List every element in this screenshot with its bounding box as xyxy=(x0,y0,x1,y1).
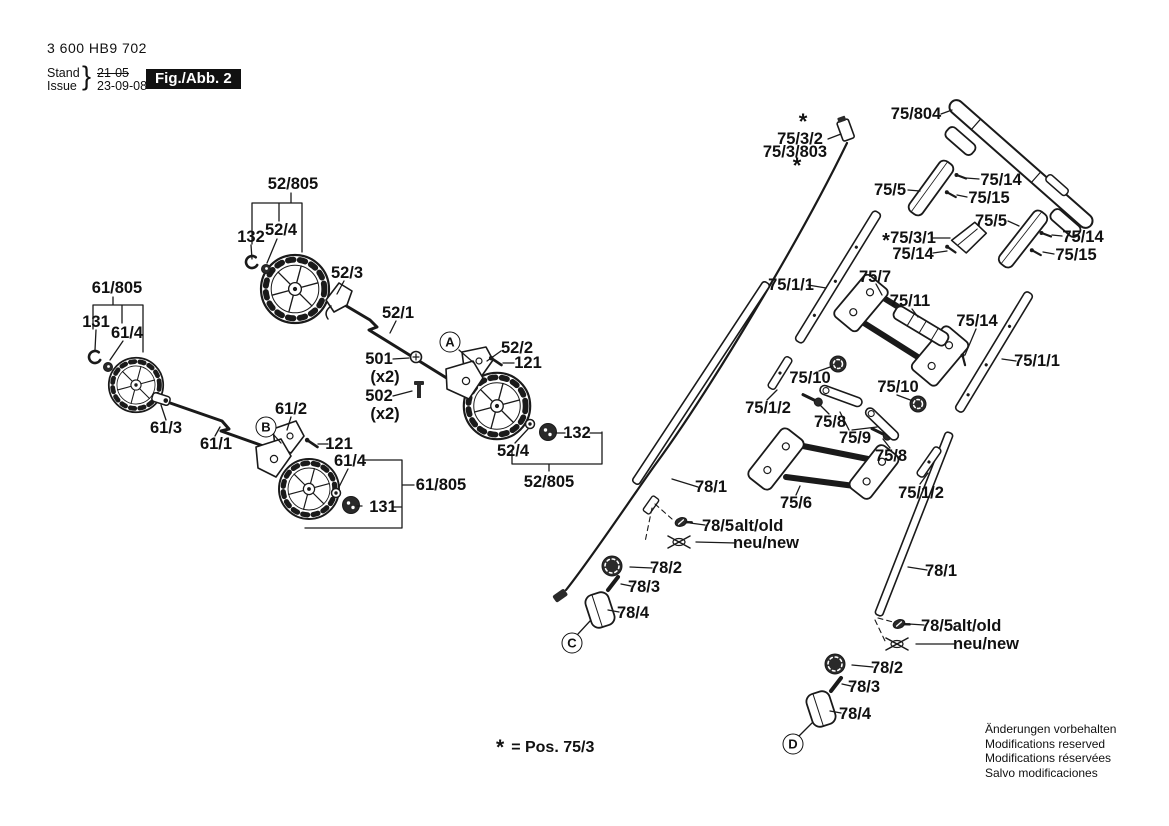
part-label-78-3: 78/3 xyxy=(628,579,660,596)
note-line: Änderungen vorbehalten xyxy=(985,722,1116,737)
part-label-75-9: 75/9 xyxy=(839,430,871,447)
part-label-78-5: 78/5 xyxy=(702,518,734,535)
parts-diagram-page: 3 600 HB9 702 Stand Issue } 21-05 23-09-… xyxy=(0,0,1169,826)
part-label-75-14: 75/14 xyxy=(980,172,1021,189)
part-label-78-1: 78/1 xyxy=(695,479,727,496)
part-label-75-1-2: 75/1/2 xyxy=(745,400,791,417)
stand-label: Stand xyxy=(47,66,80,80)
note-line: Salvo modificaciones xyxy=(985,766,1116,781)
part-label-61-1: 61/1 xyxy=(200,436,232,453)
part-label-75-11: 75/11 xyxy=(890,293,930,310)
stand-value-struck: 21-05 xyxy=(97,66,129,80)
part-label-75-14: 75/14 xyxy=(956,313,997,330)
asterisk-legend: * = Pos. 75/3 xyxy=(496,737,594,758)
asterisk-legend-text: = Pos. 75/3 xyxy=(511,739,594,757)
knob-78-2-right xyxy=(825,654,845,674)
part-label-75-8: 75/8 xyxy=(875,448,907,465)
part-label-75-1-1: 75/1/1 xyxy=(1014,353,1060,370)
part-label--: * xyxy=(882,231,890,251)
part-label-75-14: 75/14 xyxy=(892,246,933,263)
part-label-52-805: 52/805 xyxy=(268,176,318,193)
part-label-75-10: 75/10 xyxy=(877,379,918,396)
callout-a: A xyxy=(440,332,461,353)
grip-75-5-left xyxy=(906,158,955,218)
part-label-75-10: 75/10 xyxy=(789,370,830,387)
part-label-75-1-1: 75/1/1 xyxy=(768,277,814,294)
discontinued-screw-right xyxy=(886,638,908,650)
callout-c: C xyxy=(562,633,583,654)
part-label-75-804: 75/804 xyxy=(891,106,941,123)
knob-75-10-left xyxy=(830,356,846,372)
pin-78-3-right xyxy=(831,678,841,691)
knob-78-2-left xyxy=(602,556,622,576)
part-label-78-4: 78/4 xyxy=(839,706,871,723)
part-number: 3 600 HB9 702 xyxy=(47,40,147,56)
part-label-75-15: 75/15 xyxy=(1055,247,1096,264)
cover-78-4-right xyxy=(804,689,837,729)
part-label--x2-: (x2) xyxy=(370,369,399,386)
part-label-neu-new: neu/new xyxy=(953,636,1019,653)
part-label-75-15: 75/15 xyxy=(968,190,1009,207)
part-label-52-4: 52/4 xyxy=(497,443,529,460)
part-label-78-3: 78/3 xyxy=(848,679,880,696)
part-label-131: 131 xyxy=(82,314,110,331)
part-label-121: 121 xyxy=(325,436,353,453)
part-label-75-5: 75/5 xyxy=(975,213,1007,230)
part-label-121: 121 xyxy=(514,355,542,372)
part-label--: * xyxy=(793,155,802,177)
part-label-132: 132 xyxy=(237,229,265,246)
part-label-61-3: 61/3 xyxy=(150,420,182,437)
part-label-alt-old: alt/old xyxy=(953,618,1002,635)
issue-label: Issue xyxy=(47,79,77,93)
part-label-75-7: 75/7 xyxy=(859,269,891,286)
asterisk-symbol: * xyxy=(496,737,504,758)
part-label-75-6: 75/6 xyxy=(780,495,812,512)
screw-78-5-right xyxy=(892,617,910,630)
part-label-52-805: 52/805 xyxy=(524,474,574,491)
part-label-75-14: 75/14 xyxy=(1062,229,1103,246)
part-75-11 xyxy=(892,305,951,348)
handle-assembly xyxy=(943,93,1098,239)
part-label-502: 502 xyxy=(365,388,393,405)
modification-notes: Änderungen vorbehalten Modifications res… xyxy=(985,722,1116,780)
part-label-52-4: 52/4 xyxy=(265,222,297,239)
part-label-78-5: 78/5 xyxy=(921,618,953,635)
part-label-75-5: 75/5 xyxy=(874,182,906,199)
part-label-61-4: 61/4 xyxy=(334,453,366,470)
pin-78-3-left xyxy=(608,577,618,590)
note-line: Modifications réservées xyxy=(985,751,1116,766)
issue-value: 23-09-08 xyxy=(97,79,147,93)
part-label-78-2: 78/2 xyxy=(871,660,903,677)
exploded-diagram xyxy=(0,0,1169,826)
note-line: Modifications reserved xyxy=(985,737,1116,752)
part-label-131: 131 xyxy=(369,499,397,516)
brace-glyph: } xyxy=(82,61,91,92)
tube-78-1-left xyxy=(632,281,771,486)
lever-75-9-a xyxy=(819,384,863,408)
part-label-52-1: 52/1 xyxy=(382,305,414,322)
knob-75-10-right xyxy=(910,396,926,412)
cover-78-4-left xyxy=(583,590,616,630)
screw-78-5-left xyxy=(674,515,692,528)
part-label-78-1: 78/1 xyxy=(925,563,957,580)
part-label-75-1-2: 75/1/2 xyxy=(898,485,944,502)
figure-number-badge: Fig./Abb. 2 xyxy=(146,69,241,89)
part-label-52-3: 52/3 xyxy=(331,265,363,282)
part-label--x2-: (x2) xyxy=(370,406,399,423)
part-label-132: 132 xyxy=(563,425,591,442)
part-label-61-2: 61/2 xyxy=(275,401,307,418)
part-label-neu-new: neu/new xyxy=(733,535,799,552)
part-label-alt-old: alt/old xyxy=(735,518,784,535)
console-75-7 xyxy=(832,273,970,388)
discontinued-screw-left xyxy=(668,536,690,548)
part-label-61-4: 61/4 xyxy=(111,325,143,342)
part-label-78-4: 78/4 xyxy=(617,605,649,622)
callout-b: B xyxy=(256,417,277,438)
callout-d: D xyxy=(783,734,804,755)
part-label-501: 501 xyxy=(365,351,393,368)
part-label-61-805: 61/805 xyxy=(92,280,142,297)
part-label-61-805: 61/805 xyxy=(416,477,466,494)
part-label-78-2: 78/2 xyxy=(650,560,682,577)
